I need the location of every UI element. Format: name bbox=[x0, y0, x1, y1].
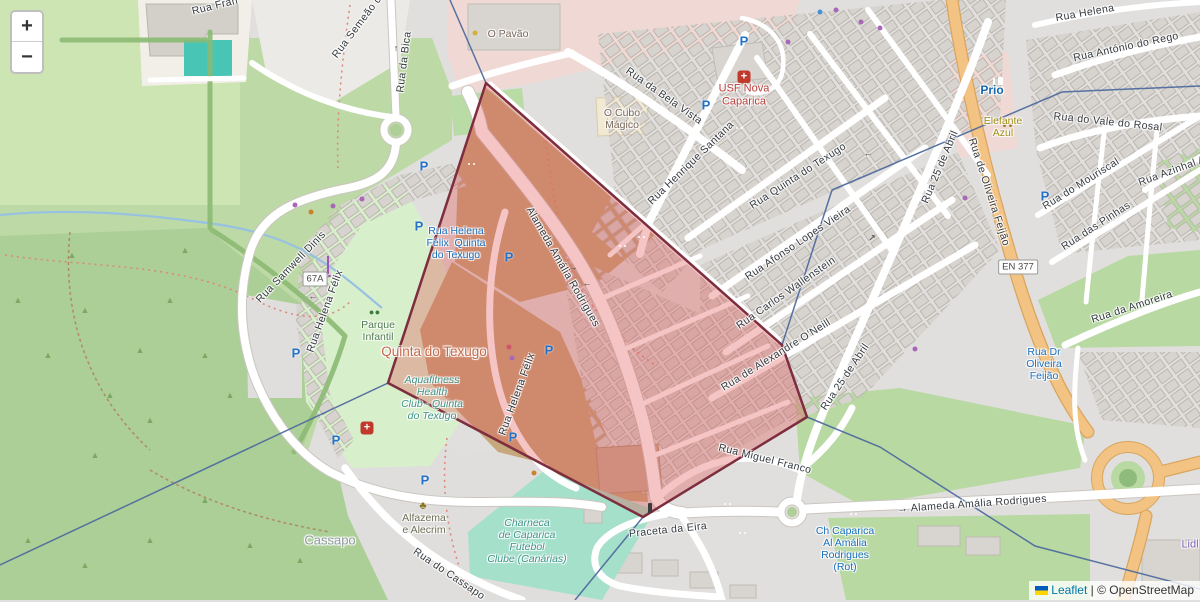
building bbox=[652, 560, 678, 576]
building bbox=[918, 526, 960, 546]
building bbox=[730, 585, 756, 598]
attribution-separator: | bbox=[1087, 583, 1097, 597]
map-canvas[interactable]: PPPPPPPPPPP++♣● ●←→←←↑↗▲▲▲▲▲▲▲▲▲▲▲▲▲▲▲▲▲… bbox=[0, 0, 1200, 600]
pavao-building bbox=[468, 4, 560, 50]
roundabout-center bbox=[787, 507, 797, 517]
roundabout-center bbox=[390, 124, 402, 136]
ukraine-flag-icon bbox=[1035, 586, 1048, 595]
zoom-control: + − bbox=[10, 10, 44, 74]
building bbox=[966, 537, 1000, 555]
zoom-out-button[interactable]: − bbox=[12, 42, 42, 72]
osm-copyright[interactable]: © OpenStreetMap bbox=[1097, 583, 1194, 597]
map-tiles bbox=[0, 0, 1200, 600]
lidl-building bbox=[1142, 540, 1200, 585]
attribution-bar: Leaflet | © OpenStreetMap bbox=[1029, 581, 1200, 600]
zoom-in-button[interactable]: + bbox=[12, 12, 42, 42]
leaflet-link[interactable]: Leaflet bbox=[1051, 583, 1087, 597]
